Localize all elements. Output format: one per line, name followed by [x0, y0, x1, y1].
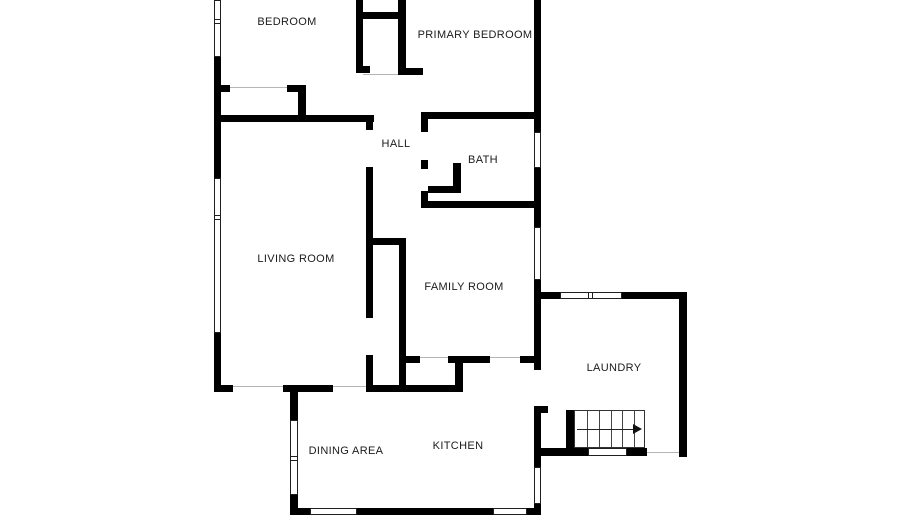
- room-label-bedroom: BEDROOM: [257, 16, 316, 28]
- door-opening: [420, 357, 448, 358]
- window: [534, 467, 541, 504]
- window-mullion: [215, 215, 220, 216]
- window-mullion: [291, 460, 297, 461]
- door-opening: [233, 386, 283, 387]
- wall: [214, 385, 233, 392]
- wall: [399, 242, 406, 390]
- window-mullion: [588, 293, 589, 298]
- stair-direction-arrow: [633, 424, 642, 434]
- door-opening: [363, 74, 398, 75]
- wall: [366, 115, 373, 130]
- wall: [428, 186, 461, 193]
- wall: [398, 0, 406, 75]
- window-mullion: [592, 293, 593, 298]
- wall: [356, 66, 370, 73]
- room-label-laundry: LAUNDRY: [587, 362, 642, 374]
- window: [290, 420, 298, 495]
- wall: [421, 112, 537, 119]
- window-mullion: [215, 219, 220, 220]
- room-label-primary-bedroom: PRIMARY BEDROOM: [418, 29, 533, 41]
- wall: [290, 508, 310, 515]
- wall: [290, 392, 298, 420]
- wall: [520, 356, 534, 363]
- floorplan-canvas: BEDROOMPRIMARY BEDROOMHALLBATHLIVING ROO…: [0, 0, 900, 529]
- window: [534, 132, 541, 168]
- wall: [534, 406, 548, 413]
- window: [560, 292, 622, 299]
- door-opening: [647, 452, 679, 453]
- wall: [356, 0, 363, 73]
- room-label-hall: HALL: [382, 138, 411, 150]
- wall: [366, 385, 463, 392]
- wall: [679, 292, 687, 457]
- wall: [406, 356, 420, 363]
- room-label-living-room: LIVING ROOM: [257, 253, 334, 265]
- stair-run-line: [577, 429, 634, 430]
- wall: [214, 333, 221, 392]
- door-opening: [333, 386, 366, 387]
- wall: [398, 68, 423, 75]
- wall: [534, 292, 560, 299]
- window: [310, 508, 357, 515]
- wall: [421, 112, 428, 132]
- room-label-bath: BATH: [468, 154, 498, 166]
- window: [534, 227, 541, 280]
- door-opening: [230, 87, 287, 88]
- wall: [214, 115, 374, 122]
- wall: [448, 356, 490, 363]
- window-mullion: [291, 456, 297, 457]
- window: [214, 178, 221, 333]
- wall: [566, 410, 574, 448]
- wall: [534, 168, 541, 227]
- window: [214, 0, 221, 57]
- room-label-family-room: FAMILY ROOM: [424, 281, 503, 293]
- wall: [357, 508, 493, 515]
- window-mullion: [215, 19, 220, 20]
- wall: [283, 385, 333, 392]
- window: [493, 508, 527, 515]
- wall: [527, 508, 541, 515]
- door-opening: [490, 357, 520, 358]
- room-label-dining-area: DINING AREA: [309, 445, 384, 457]
- staircase: [574, 410, 645, 448]
- wall: [421, 201, 537, 208]
- wall: [221, 85, 230, 92]
- window-mullion: [215, 23, 220, 24]
- wall: [298, 85, 306, 122]
- wall: [622, 292, 683, 299]
- wall: [534, 406, 541, 467]
- window: [588, 448, 627, 456]
- room-label-kitchen: KITCHEN: [433, 440, 484, 452]
- wall: [534, 448, 588, 456]
- wall: [421, 160, 428, 169]
- wall: [627, 448, 647, 456]
